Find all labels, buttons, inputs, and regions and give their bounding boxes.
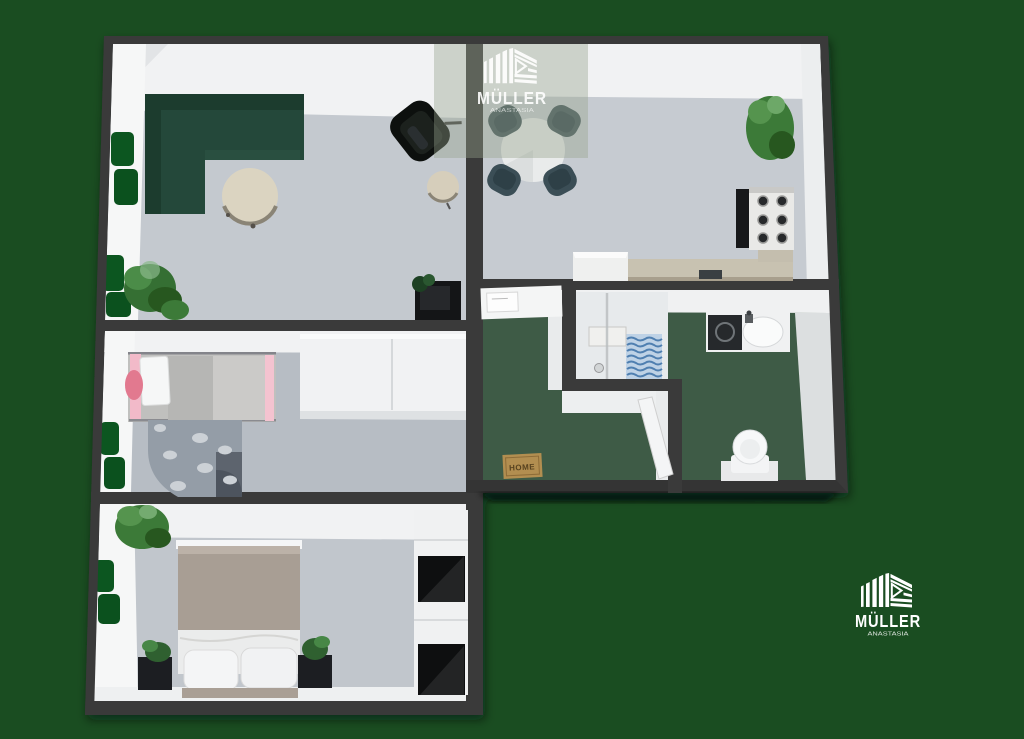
svg-text:HOME: HOME: [509, 462, 536, 472]
svg-text:ANASTASIA: ANASTASIA: [868, 632, 910, 638]
svg-text:MÜLLER: MÜLLER: [855, 611, 921, 631]
svg-text:ANASTASIA: ANASTASIA: [490, 108, 535, 114]
svg-text:MÜLLER: MÜLLER: [477, 88, 547, 108]
